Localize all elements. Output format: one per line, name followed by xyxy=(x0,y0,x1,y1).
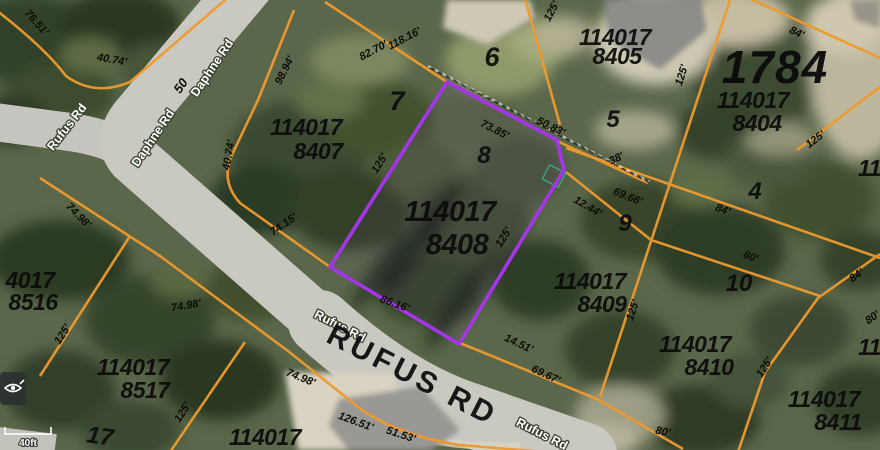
parcel-map-canvas: 76.51' 40.74' 50 98.94' 40.74' 82.70' 11… xyxy=(0,0,880,450)
lot-number: 10 xyxy=(726,270,753,297)
lot-number: 7 xyxy=(389,86,406,116)
parcel-id: 8411 xyxy=(814,409,861,435)
parcel-id: 114017 xyxy=(229,424,303,450)
lot-number: 6 xyxy=(484,42,500,72)
lot-number: 8 xyxy=(477,142,491,169)
lot-number: 17 xyxy=(85,421,117,450)
parcel-id: 1140 xyxy=(858,155,880,181)
scale-bar-label: 40ft xyxy=(19,438,37,449)
block-number: 1784 xyxy=(722,41,828,93)
lot-number: 9 xyxy=(618,210,632,237)
parcel-id: 114017 xyxy=(270,114,344,140)
parcel-id: 114 xyxy=(858,334,880,360)
map-tool-button[interactable] xyxy=(0,372,26,405)
parcel-id: 8404 xyxy=(732,110,782,136)
lot-number: 4 xyxy=(747,178,761,205)
parcel-id-selected: 114017 xyxy=(404,196,498,228)
parcel-id: 8405 xyxy=(592,43,643,69)
parcel-id: 8407 xyxy=(293,138,344,164)
parcel-id: 8517 xyxy=(120,377,171,403)
parcel-id-selected: 8408 xyxy=(426,229,490,261)
lot-number: 5 xyxy=(606,106,620,133)
parcel-id: 8410 xyxy=(684,354,734,380)
parcel-id: 8409 xyxy=(577,291,627,317)
parcel-id: 8516 xyxy=(8,289,58,315)
